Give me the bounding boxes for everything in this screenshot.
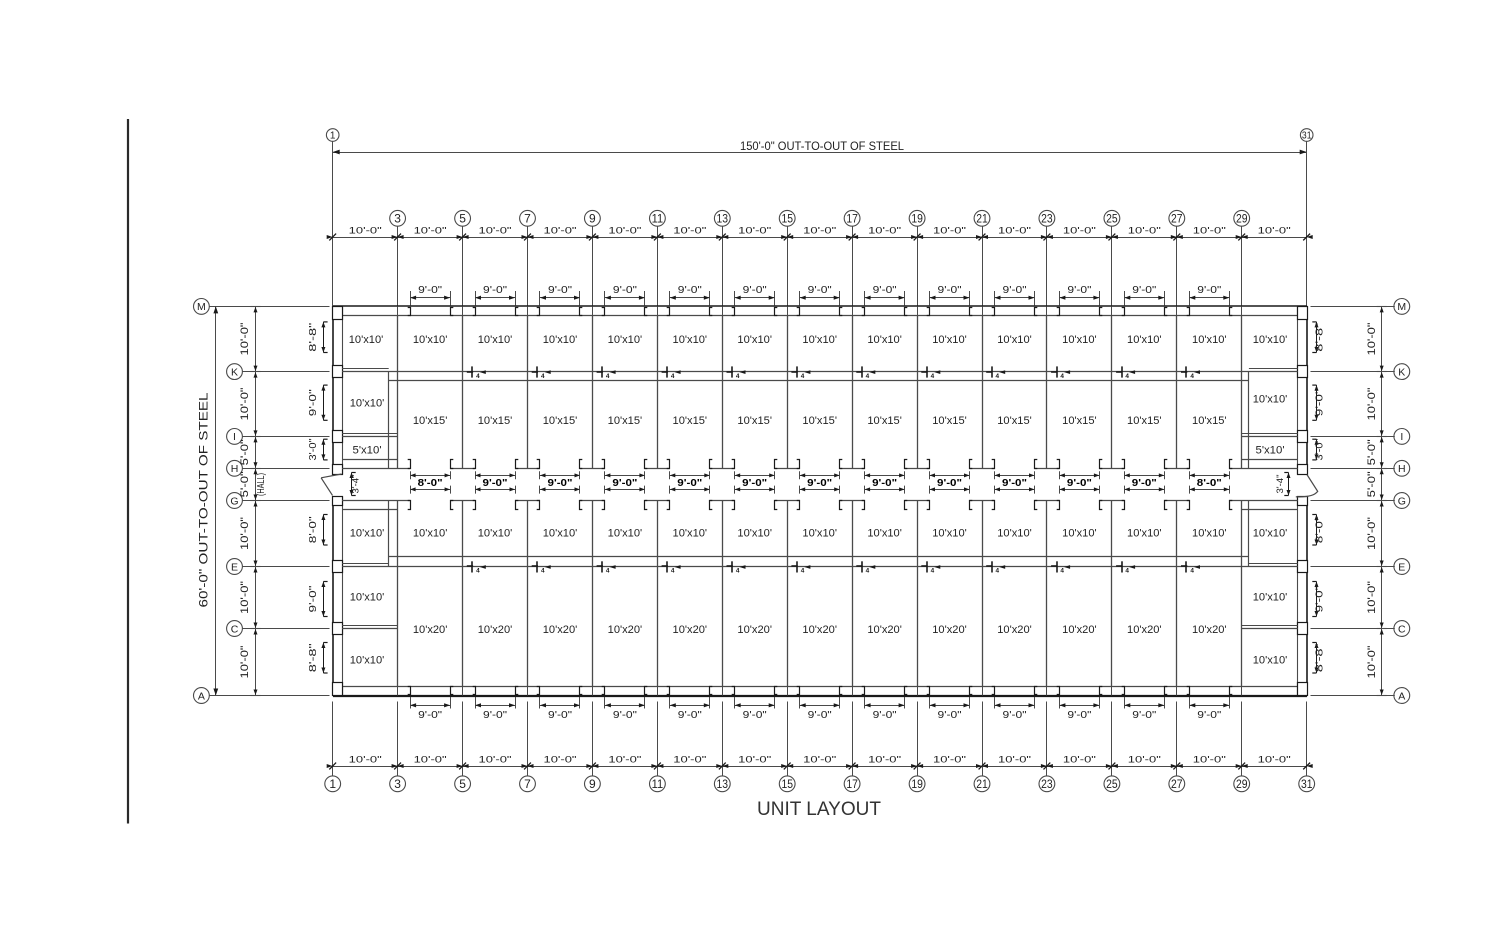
svg-text:K: K bbox=[231, 366, 238, 378]
svg-text:4: 4 bbox=[866, 373, 870, 380]
svg-text:I: I bbox=[233, 431, 236, 443]
svg-text:29: 29 bbox=[1236, 777, 1248, 791]
svg-text:9'-0": 9'-0" bbox=[418, 285, 443, 296]
svg-text:G: G bbox=[1398, 495, 1406, 507]
svg-text:21: 21 bbox=[976, 212, 988, 226]
svg-text:5'x10': 5'x10' bbox=[353, 445, 382, 457]
svg-text:10'-0": 10'-0" bbox=[349, 226, 382, 236]
svg-text:10'x10': 10'x10' bbox=[349, 334, 384, 346]
svg-text:9'-0": 9'-0" bbox=[1067, 710, 1092, 721]
svg-text:9'-0": 9'-0" bbox=[678, 710, 703, 721]
svg-text:10'-0": 10'-0" bbox=[738, 755, 771, 765]
svg-text:10'x10': 10'x10' bbox=[1253, 592, 1288, 604]
svg-text:4: 4 bbox=[931, 568, 935, 575]
svg-text:10'-0": 10'-0" bbox=[998, 755, 1031, 765]
svg-text:11: 11 bbox=[652, 212, 664, 226]
svg-text:10'x20': 10'x20' bbox=[802, 624, 837, 636]
svg-text:9: 9 bbox=[589, 777, 596, 791]
svg-text:8'-8": 8'-8" bbox=[1315, 322, 1326, 352]
svg-text:4: 4 bbox=[736, 568, 740, 575]
svg-text:10'-0": 10'-0" bbox=[608, 226, 641, 236]
svg-text:5: 5 bbox=[459, 212, 466, 226]
svg-text:8'-0": 8'-0" bbox=[308, 516, 319, 544]
svg-text:K: K bbox=[1398, 366, 1405, 378]
svg-text:10'-0": 10'-0" bbox=[1063, 226, 1096, 236]
svg-text:10'x15': 10'x15' bbox=[1192, 415, 1227, 427]
svg-text:10'x10': 10'x10' bbox=[1127, 528, 1162, 540]
svg-text:H: H bbox=[1398, 463, 1406, 475]
svg-text:10'x10': 10'x10' bbox=[737, 334, 772, 346]
svg-text:10'x10': 10'x10' bbox=[1192, 334, 1227, 346]
svg-text:31: 31 bbox=[1301, 777, 1313, 791]
svg-text:4: 4 bbox=[1060, 373, 1064, 380]
svg-text:4: 4 bbox=[606, 373, 610, 380]
svg-text:27: 27 bbox=[1171, 777, 1183, 791]
svg-text:7: 7 bbox=[524, 777, 531, 791]
svg-text:5'-0": 5'-0" bbox=[239, 439, 251, 465]
svg-text:3'-0": 3'-0" bbox=[308, 438, 319, 460]
svg-text:10'-0": 10'-0" bbox=[1366, 517, 1378, 550]
svg-text:10'x20': 10'x20' bbox=[867, 624, 902, 636]
svg-text:9'-0": 9'-0" bbox=[808, 710, 833, 721]
svg-text:9'-0": 9'-0" bbox=[1132, 478, 1157, 489]
svg-text:10'x10': 10'x10' bbox=[997, 334, 1032, 346]
svg-text:10'x15': 10'x15' bbox=[413, 415, 448, 427]
svg-text:10'x10': 10'x10' bbox=[413, 334, 448, 346]
svg-text:4: 4 bbox=[996, 568, 1000, 575]
svg-text:9'-0": 9'-0" bbox=[937, 478, 962, 489]
svg-text:10'-0": 10'-0" bbox=[1366, 645, 1378, 678]
svg-text:9'-0": 9'-0" bbox=[1003, 710, 1028, 721]
svg-text:19: 19 bbox=[911, 777, 923, 791]
svg-text:C: C bbox=[1398, 623, 1406, 635]
svg-text:17: 17 bbox=[846, 212, 858, 226]
svg-text:9'-0": 9'-0" bbox=[1197, 285, 1222, 296]
svg-text:4: 4 bbox=[1060, 568, 1064, 575]
svg-text:10'x10': 10'x10' bbox=[802, 528, 837, 540]
svg-text:10'-0": 10'-0" bbox=[239, 387, 251, 420]
svg-text:G: G bbox=[230, 495, 238, 507]
svg-text:31: 31 bbox=[1302, 131, 1312, 142]
svg-text:150'-0" OUT-TO-OUT OF STEEL: 150'-0" OUT-TO-OUT OF STEEL bbox=[740, 141, 905, 153]
svg-text:4: 4 bbox=[801, 568, 805, 575]
svg-text:9'-0": 9'-0" bbox=[1315, 389, 1326, 417]
svg-text:1: 1 bbox=[329, 777, 336, 791]
svg-text:10'-0": 10'-0" bbox=[1193, 226, 1226, 236]
svg-text:10'x10': 10'x10' bbox=[1192, 528, 1227, 540]
svg-text:8'-0": 8'-0" bbox=[418, 478, 443, 489]
svg-text:10'x10': 10'x10' bbox=[802, 334, 837, 346]
svg-text:4: 4 bbox=[736, 373, 740, 380]
svg-text:9'-0": 9'-0" bbox=[1315, 585, 1326, 613]
svg-text:4: 4 bbox=[866, 568, 870, 575]
svg-text:21: 21 bbox=[976, 777, 988, 791]
svg-text:10'x20': 10'x20' bbox=[1062, 624, 1097, 636]
svg-text:10'x10': 10'x10' bbox=[478, 528, 513, 540]
svg-text:4: 4 bbox=[541, 373, 545, 380]
svg-text:25: 25 bbox=[1106, 212, 1118, 226]
svg-text:10'-0": 10'-0" bbox=[414, 226, 447, 236]
svg-text:10'-0": 10'-0" bbox=[1366, 581, 1378, 614]
svg-text:11: 11 bbox=[652, 777, 664, 791]
svg-text:10'x10': 10'x10' bbox=[1253, 334, 1288, 346]
svg-text:10'x15': 10'x15' bbox=[1127, 415, 1162, 427]
svg-text:5'x10': 5'x10' bbox=[1256, 445, 1285, 457]
svg-text:9: 9 bbox=[589, 212, 596, 226]
svg-text:10'x10': 10'x10' bbox=[413, 528, 448, 540]
svg-text:9'-0": 9'-0" bbox=[612, 478, 637, 489]
svg-text:10'x10': 10'x10' bbox=[1127, 334, 1162, 346]
svg-text:8'-8": 8'-8" bbox=[308, 643, 319, 673]
svg-text:9'-0": 9'-0" bbox=[548, 710, 573, 721]
svg-text:10'-0": 10'-0" bbox=[868, 755, 901, 765]
svg-text:I: I bbox=[1400, 431, 1403, 443]
svg-text:9'-0": 9'-0" bbox=[483, 710, 508, 721]
svg-text:23: 23 bbox=[1041, 777, 1053, 791]
svg-text:10'x10': 10'x10' bbox=[1062, 528, 1097, 540]
svg-text:10'x10': 10'x10' bbox=[1253, 528, 1288, 540]
svg-text:3: 3 bbox=[394, 777, 401, 791]
svg-text:3'-4": 3'-4" bbox=[1275, 475, 1286, 494]
svg-text:E: E bbox=[1398, 561, 1405, 573]
svg-text:5'-0": 5'-0" bbox=[1366, 471, 1378, 497]
svg-text:10'x10': 10'x10' bbox=[1253, 655, 1288, 667]
svg-text:5'-0": 5'-0" bbox=[1366, 439, 1378, 465]
svg-text:8'-0": 8'-0" bbox=[1197, 478, 1222, 489]
svg-text:9'-0": 9'-0" bbox=[1132, 710, 1157, 721]
svg-text:10'x15': 10'x15' bbox=[867, 415, 902, 427]
svg-text:UNIT LAYOUT: UNIT LAYOUT bbox=[757, 798, 881, 820]
svg-text:13: 13 bbox=[717, 212, 729, 226]
svg-text:9'-0": 9'-0" bbox=[308, 585, 319, 613]
svg-text:10'x10': 10'x10' bbox=[673, 334, 708, 346]
svg-text:10'x20': 10'x20' bbox=[997, 624, 1032, 636]
svg-text:10'-0": 10'-0" bbox=[1366, 322, 1378, 355]
svg-text:10'-0": 10'-0" bbox=[998, 226, 1031, 236]
svg-text:9'-0": 9'-0" bbox=[1132, 285, 1157, 296]
svg-text:29: 29 bbox=[1236, 212, 1248, 226]
svg-text:H: H bbox=[231, 463, 239, 475]
svg-text:23: 23 bbox=[1041, 212, 1053, 226]
svg-text:5: 5 bbox=[459, 777, 466, 791]
svg-text:3'-0": 3'-0" bbox=[1315, 438, 1326, 460]
svg-text:10'x20': 10'x20' bbox=[478, 624, 513, 636]
svg-text:9'-0": 9'-0" bbox=[613, 285, 638, 296]
svg-text:10'x15': 10'x15' bbox=[932, 415, 967, 427]
svg-text:8'-0": 8'-0" bbox=[1315, 516, 1326, 544]
svg-text:A: A bbox=[198, 690, 205, 702]
svg-text:10'x20': 10'x20' bbox=[413, 624, 448, 636]
svg-text:10'x10': 10'x10' bbox=[737, 528, 772, 540]
svg-text:10'-0": 10'-0" bbox=[673, 226, 706, 236]
svg-text:10'-0": 10'-0" bbox=[803, 226, 836, 236]
svg-text:10'x10': 10'x10' bbox=[350, 592, 385, 604]
svg-text:9'-0": 9'-0" bbox=[873, 710, 898, 721]
svg-text:4: 4 bbox=[1125, 373, 1129, 380]
svg-text:10'x10': 10'x10' bbox=[350, 398, 385, 410]
svg-text:10'x20': 10'x20' bbox=[932, 624, 967, 636]
svg-text:10'-0": 10'-0" bbox=[239, 645, 251, 678]
svg-text:10'x10': 10'x10' bbox=[478, 334, 513, 346]
svg-text:4: 4 bbox=[801, 373, 805, 380]
svg-text:10'x15': 10'x15' bbox=[608, 415, 643, 427]
svg-text:10'x15': 10'x15' bbox=[802, 415, 837, 427]
svg-text:10'-0": 10'-0" bbox=[933, 755, 966, 765]
svg-text:10'x10': 10'x10' bbox=[543, 528, 578, 540]
svg-text:10'x15': 10'x15' bbox=[737, 415, 772, 427]
svg-text:4: 4 bbox=[606, 568, 610, 575]
svg-text:9'-0": 9'-0" bbox=[742, 478, 767, 489]
svg-text:10'-0": 10'-0" bbox=[738, 226, 771, 236]
svg-text:10'-0": 10'-0" bbox=[544, 755, 577, 765]
svg-text:9'-0": 9'-0" bbox=[807, 478, 832, 489]
svg-text:10'x20': 10'x20' bbox=[1127, 624, 1162, 636]
svg-text:10'-0": 10'-0" bbox=[1128, 226, 1161, 236]
svg-text:10'x10': 10'x10' bbox=[608, 334, 643, 346]
svg-text:A: A bbox=[1398, 690, 1405, 702]
svg-text:10'x10': 10'x10' bbox=[867, 334, 902, 346]
svg-text:9'-0": 9'-0" bbox=[938, 710, 963, 721]
svg-text:4: 4 bbox=[476, 373, 480, 380]
svg-text:9'-0": 9'-0" bbox=[872, 478, 897, 489]
svg-text:15: 15 bbox=[781, 777, 793, 791]
svg-text:25: 25 bbox=[1106, 777, 1118, 791]
svg-text:10'x15': 10'x15' bbox=[997, 415, 1032, 427]
svg-text:10'-0": 10'-0" bbox=[479, 226, 512, 236]
svg-text:10'-0": 10'-0" bbox=[933, 226, 966, 236]
svg-text:10'x15': 10'x15' bbox=[543, 415, 578, 427]
svg-text:9'-0": 9'-0" bbox=[808, 285, 833, 296]
svg-text:10'x10': 10'x10' bbox=[867, 528, 902, 540]
svg-text:10'-0": 10'-0" bbox=[1258, 226, 1291, 236]
svg-text:10'x10': 10'x10' bbox=[997, 528, 1032, 540]
svg-text:3: 3 bbox=[394, 212, 401, 226]
svg-text:10'x10': 10'x10' bbox=[350, 528, 385, 540]
svg-text:10'-0": 10'-0" bbox=[239, 517, 251, 550]
svg-text:4: 4 bbox=[1190, 373, 1194, 380]
svg-text:9'-0": 9'-0" bbox=[308, 389, 319, 417]
svg-text:10'-0": 10'-0" bbox=[1193, 755, 1226, 765]
svg-text:M: M bbox=[1397, 301, 1406, 313]
svg-text:8'-8": 8'-8" bbox=[1315, 643, 1326, 673]
svg-text:10'x20': 10'x20' bbox=[737, 624, 772, 636]
svg-text:10'x20': 10'x20' bbox=[543, 624, 578, 636]
svg-text:10'-0": 10'-0" bbox=[239, 322, 251, 355]
svg-text:9'-0": 9'-0" bbox=[873, 285, 898, 296]
svg-text:1: 1 bbox=[330, 131, 336, 142]
svg-text:5'-0": 5'-0" bbox=[239, 471, 251, 497]
svg-text:10'-0": 10'-0" bbox=[803, 755, 836, 765]
svg-text:10'x20': 10'x20' bbox=[673, 624, 708, 636]
svg-text:9'-0": 9'-0" bbox=[678, 285, 703, 296]
svg-text:9'-0": 9'-0" bbox=[677, 478, 702, 489]
svg-text:10'-0": 10'-0" bbox=[479, 755, 512, 765]
svg-text:4: 4 bbox=[931, 373, 935, 380]
svg-text:8'-8": 8'-8" bbox=[308, 322, 319, 352]
svg-text:4: 4 bbox=[996, 373, 1000, 380]
svg-text:10'-0": 10'-0" bbox=[868, 226, 901, 236]
svg-text:3'-4": 3'-4" bbox=[351, 475, 362, 494]
svg-text:10'-0": 10'-0" bbox=[1366, 387, 1378, 420]
svg-text:10'-0": 10'-0" bbox=[349, 755, 382, 765]
svg-text:10'x10': 10'x10' bbox=[350, 655, 385, 667]
svg-text:9'-0": 9'-0" bbox=[743, 285, 768, 296]
svg-text:9'-0": 9'-0" bbox=[483, 285, 508, 296]
svg-text:15: 15 bbox=[781, 212, 793, 226]
svg-text:4: 4 bbox=[1190, 568, 1194, 575]
svg-text:(HALL): (HALL) bbox=[256, 473, 267, 496]
svg-text:4: 4 bbox=[671, 373, 675, 380]
svg-text:10'-0": 10'-0" bbox=[1063, 755, 1096, 765]
svg-text:10'x20': 10'x20' bbox=[1192, 624, 1227, 636]
svg-text:10'x15': 10'x15' bbox=[478, 415, 513, 427]
svg-text:4: 4 bbox=[671, 568, 675, 575]
svg-text:9'-0": 9'-0" bbox=[548, 285, 573, 296]
svg-text:4: 4 bbox=[476, 568, 480, 575]
svg-text:10'x10': 10'x10' bbox=[1062, 334, 1097, 346]
svg-text:10'-0": 10'-0" bbox=[1258, 755, 1291, 765]
svg-text:27: 27 bbox=[1171, 212, 1183, 226]
svg-text:9'-0": 9'-0" bbox=[548, 478, 573, 489]
svg-text:7: 7 bbox=[524, 212, 531, 226]
svg-text:9'-0": 9'-0" bbox=[1067, 478, 1092, 489]
svg-text:13: 13 bbox=[717, 777, 729, 791]
svg-text:10'-0": 10'-0" bbox=[1128, 755, 1161, 765]
svg-text:10'x10': 10'x10' bbox=[932, 334, 967, 346]
svg-text:9'-0": 9'-0" bbox=[743, 710, 768, 721]
svg-text:C: C bbox=[231, 623, 239, 635]
svg-text:17: 17 bbox=[846, 777, 858, 791]
svg-text:10'x10': 10'x10' bbox=[673, 528, 708, 540]
svg-text:9'-0": 9'-0" bbox=[1197, 710, 1222, 721]
svg-text:10'x20': 10'x20' bbox=[608, 624, 643, 636]
svg-text:10'-0": 10'-0" bbox=[673, 755, 706, 765]
svg-text:10'x10': 10'x10' bbox=[1253, 394, 1288, 406]
svg-text:10'x10': 10'x10' bbox=[932, 528, 967, 540]
svg-text:60'-0" OUT-TO-OUT OF STEEL: 60'-0" OUT-TO-OUT OF STEEL bbox=[199, 392, 211, 608]
svg-text:E: E bbox=[231, 561, 238, 573]
svg-text:10'x15': 10'x15' bbox=[1062, 415, 1097, 427]
svg-text:M: M bbox=[197, 301, 206, 313]
svg-text:9'-0": 9'-0" bbox=[418, 710, 443, 721]
svg-text:9'-0": 9'-0" bbox=[1003, 285, 1028, 296]
svg-text:10'-0": 10'-0" bbox=[414, 755, 447, 765]
svg-text:9'-0": 9'-0" bbox=[613, 710, 638, 721]
svg-text:10'x10': 10'x10' bbox=[608, 528, 643, 540]
svg-text:9'-0": 9'-0" bbox=[483, 478, 508, 489]
svg-text:10'x15': 10'x15' bbox=[673, 415, 708, 427]
svg-text:10'-0": 10'-0" bbox=[608, 755, 641, 765]
svg-text:10'-0": 10'-0" bbox=[544, 226, 577, 236]
svg-text:10'-0": 10'-0" bbox=[239, 581, 251, 614]
svg-text:9'-0": 9'-0" bbox=[938, 285, 963, 296]
svg-text:9'-0": 9'-0" bbox=[1002, 478, 1027, 489]
svg-text:4: 4 bbox=[541, 568, 545, 575]
svg-text:19: 19 bbox=[911, 212, 923, 226]
svg-text:9'-0": 9'-0" bbox=[1067, 285, 1092, 296]
svg-text:10'x10': 10'x10' bbox=[543, 334, 578, 346]
svg-text:4: 4 bbox=[1125, 568, 1129, 575]
